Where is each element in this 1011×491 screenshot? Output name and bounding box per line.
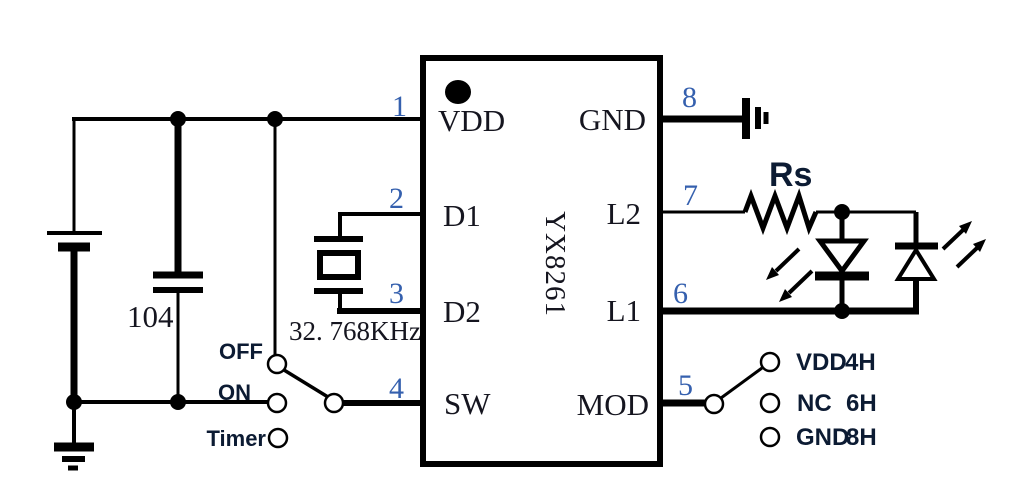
pin-number-5: 5 xyxy=(678,369,693,402)
resistor-zigzag xyxy=(745,196,816,228)
capacitor-value-label: 104 xyxy=(127,299,174,334)
mode-contact-nc xyxy=(761,394,779,412)
led1-emission-arrows xyxy=(766,249,812,302)
ic-pin-name-sw: SW xyxy=(444,386,491,421)
ic-pin-name-d2: D2 xyxy=(443,294,481,329)
mode-contact-vdd xyxy=(761,353,779,371)
pin-number-7: 7 xyxy=(683,179,698,212)
switch-label-timer: Timer xyxy=(206,426,266,451)
ic-pin-name-mod: MOD xyxy=(577,387,649,422)
resistor-label: Rs xyxy=(769,156,812,194)
switch-label-off: OFF xyxy=(219,339,263,364)
switch-contact-on xyxy=(268,394,286,412)
gnd-symbol-pin8 xyxy=(660,98,766,139)
led2 xyxy=(895,212,986,314)
ic-pin-name-l1: L1 xyxy=(607,293,641,328)
switch-contact-off xyxy=(268,355,286,373)
led2-emission-arrows xyxy=(943,221,986,267)
ic-part-number: YX8261 xyxy=(539,211,571,317)
led1-arrow-shaft-1 xyxy=(776,249,799,271)
mode-value-4h: 4H xyxy=(845,349,876,376)
mode-value-8h: 8H xyxy=(846,424,877,451)
led1-triangle xyxy=(820,241,864,271)
switch-arm xyxy=(284,370,328,397)
crystal-body xyxy=(320,253,358,277)
ic-pin-name-vdd: VDD xyxy=(438,103,505,138)
mode-pole-contact xyxy=(705,395,723,413)
switch-contact-timer xyxy=(269,429,287,447)
ic-pin-name-gnd: GND xyxy=(579,102,646,137)
mode-label-gnd: GND xyxy=(796,424,849,451)
battery xyxy=(47,117,102,468)
led1-arrow-shaft-2 xyxy=(789,271,812,293)
mode-contact-gnd xyxy=(761,428,779,446)
capacitor-104: 104 xyxy=(127,117,203,410)
ic-pin-name-d1: D1 xyxy=(443,198,481,233)
led2-triangle xyxy=(898,250,934,279)
ic-pin-name-l2: L2 xyxy=(607,196,641,231)
led2-arrow-shaft-1 xyxy=(943,230,963,249)
mode-label-nc: NC xyxy=(797,390,832,417)
switch-label-on: ON xyxy=(218,380,251,405)
led2-arrow-shaft-2 xyxy=(957,248,977,267)
crystal-frequency-label: 32. 768KHz xyxy=(289,316,421,346)
pin-number-1: 1 xyxy=(392,90,407,123)
mode-switch-arm xyxy=(721,368,762,398)
vdd-rail xyxy=(72,111,423,127)
ic-yx8261: VDD D1 D2 SW GND L2 L1 MOD YX8261 xyxy=(423,58,660,464)
mode-label-vdd: VDD xyxy=(796,349,847,376)
pin-number-3: 3 xyxy=(389,277,404,310)
resistor-rs: Rs xyxy=(660,156,916,228)
circuit-schematic: 104 OFF ON Timer 32. 768KHz VDD D1 D2 SW xyxy=(0,0,1011,491)
pin-number-8: 8 xyxy=(682,81,697,114)
led1 xyxy=(766,204,869,319)
pin-number-4: 4 xyxy=(389,372,404,405)
mode-switch: VDD 4H NC 6H GND 8H xyxy=(660,349,877,451)
pin-number-2: 2 xyxy=(389,182,404,215)
mode-value-6h: 6H xyxy=(846,390,877,417)
pin-number-6: 6 xyxy=(673,277,688,310)
schematic-canvas: 104 OFF ON Timer 32. 768KHz VDD D1 D2 SW xyxy=(0,0,1011,491)
pin1-indicator-dot xyxy=(445,80,471,104)
